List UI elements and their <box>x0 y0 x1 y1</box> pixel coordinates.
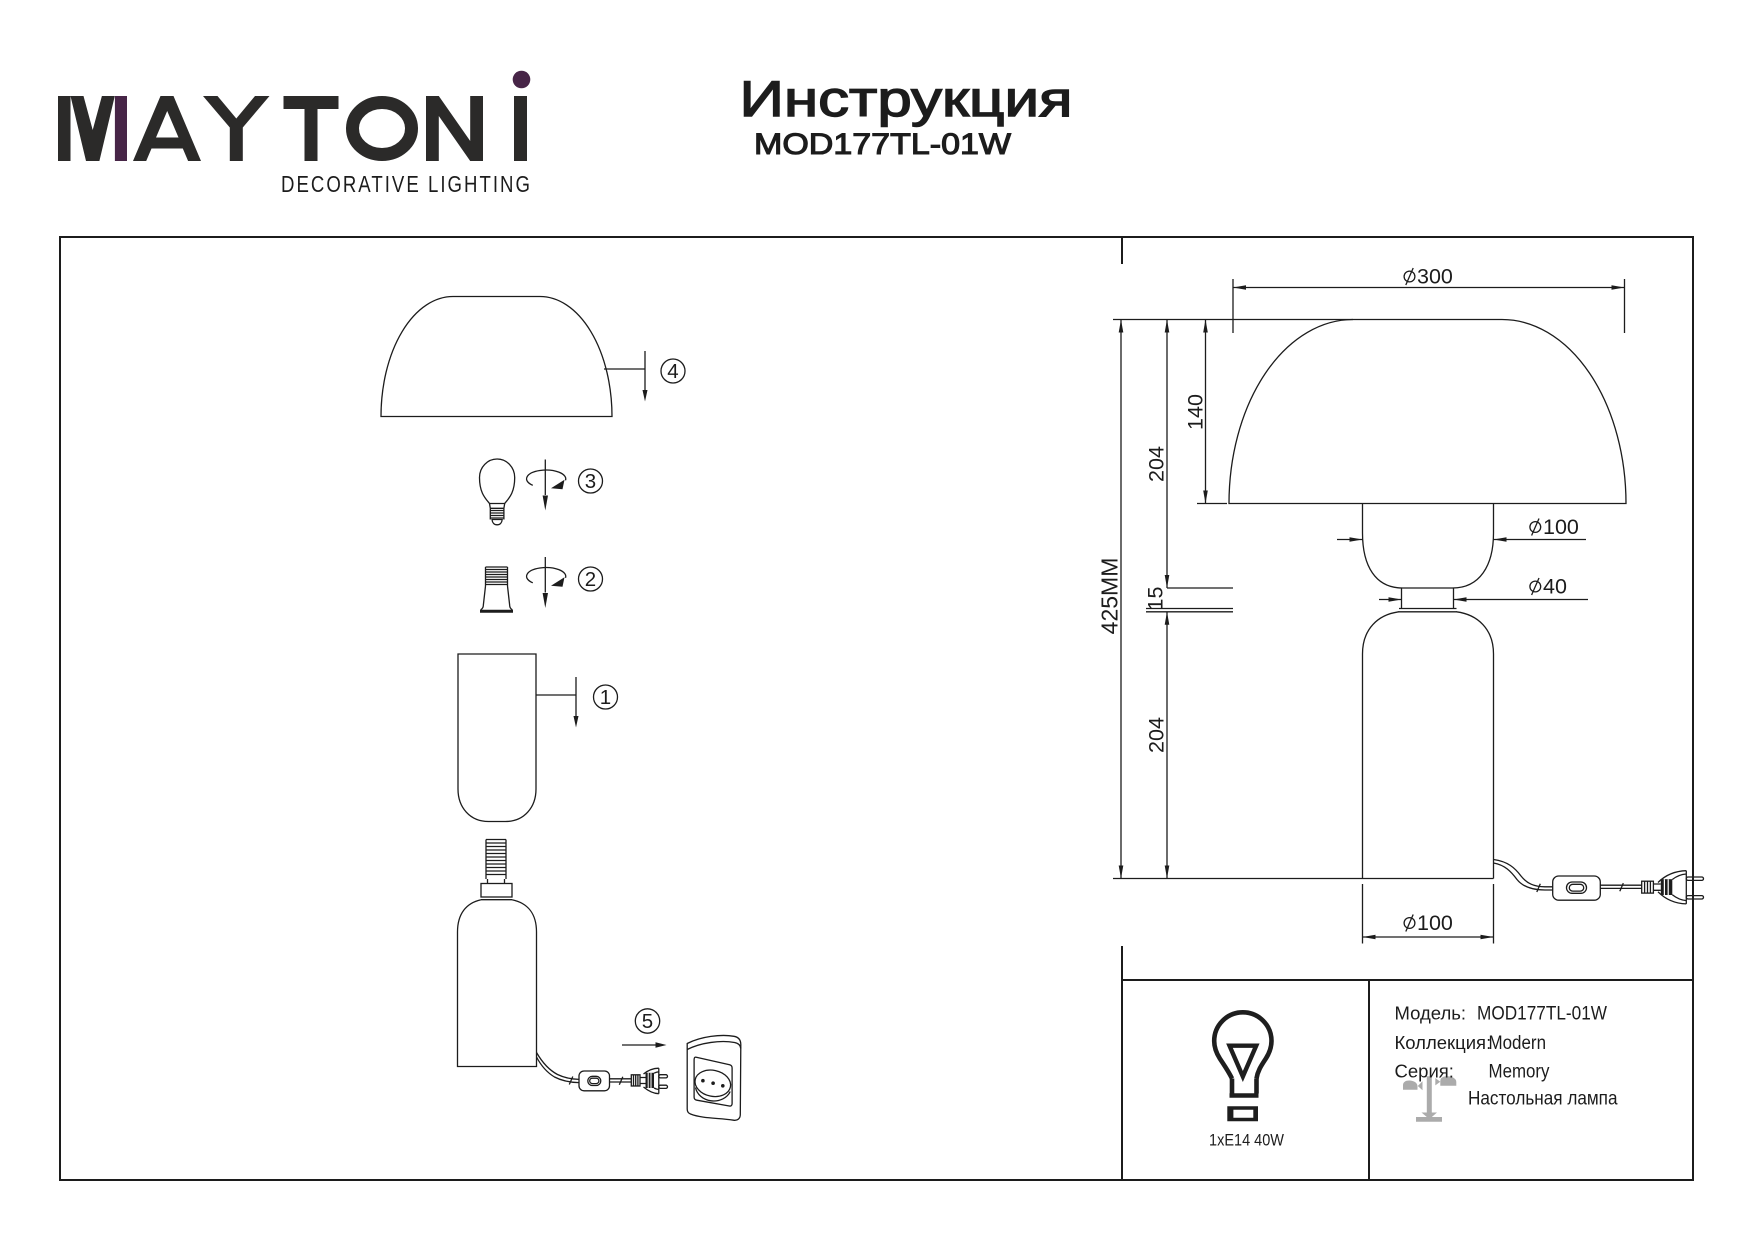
svg-text:4: 4 <box>667 360 678 383</box>
svg-text:1xE14 40W: 1xE14 40W <box>1209 1132 1284 1150</box>
svg-text:Memory: Memory <box>1489 1062 1550 1083</box>
svg-text:1: 1 <box>600 686 611 709</box>
svg-text:140: 140 <box>1184 394 1208 430</box>
svg-text:40: 40 <box>1543 575 1567 599</box>
svg-text:DECORATIVE LIGHTING: DECORATIVE LIGHTING <box>281 171 532 197</box>
svg-text:Коллекция:: Коллекция: <box>1395 1032 1492 1053</box>
svg-text:Инструкция: Инструкция <box>740 71 1073 127</box>
svg-text:204: 204 <box>1145 717 1169 753</box>
svg-text:2: 2 <box>585 568 596 591</box>
svg-text:Настольная лампа: Настольная лампа <box>1468 1089 1618 1110</box>
svg-text:300: 300 <box>1417 265 1453 289</box>
svg-text:425MM: 425MM <box>1097 558 1123 635</box>
svg-text:MOD177TL-01W: MOD177TL-01W <box>754 128 1011 161</box>
svg-text:100: 100 <box>1543 515 1579 539</box>
svg-text:Серия:: Серия: <box>1395 1061 1454 1082</box>
svg-text:15: 15 <box>1144 587 1168 611</box>
svg-text:Модель:: Модель: <box>1395 1003 1467 1024</box>
svg-text:MOD177TL-01W: MOD177TL-01W <box>1477 1004 1607 1025</box>
svg-text:3: 3 <box>585 470 596 493</box>
svg-text:204: 204 <box>1145 446 1169 482</box>
svg-text:100: 100 <box>1417 911 1453 935</box>
svg-text:Modern: Modern <box>1489 1033 1547 1054</box>
svg-text:5: 5 <box>642 1010 653 1033</box>
